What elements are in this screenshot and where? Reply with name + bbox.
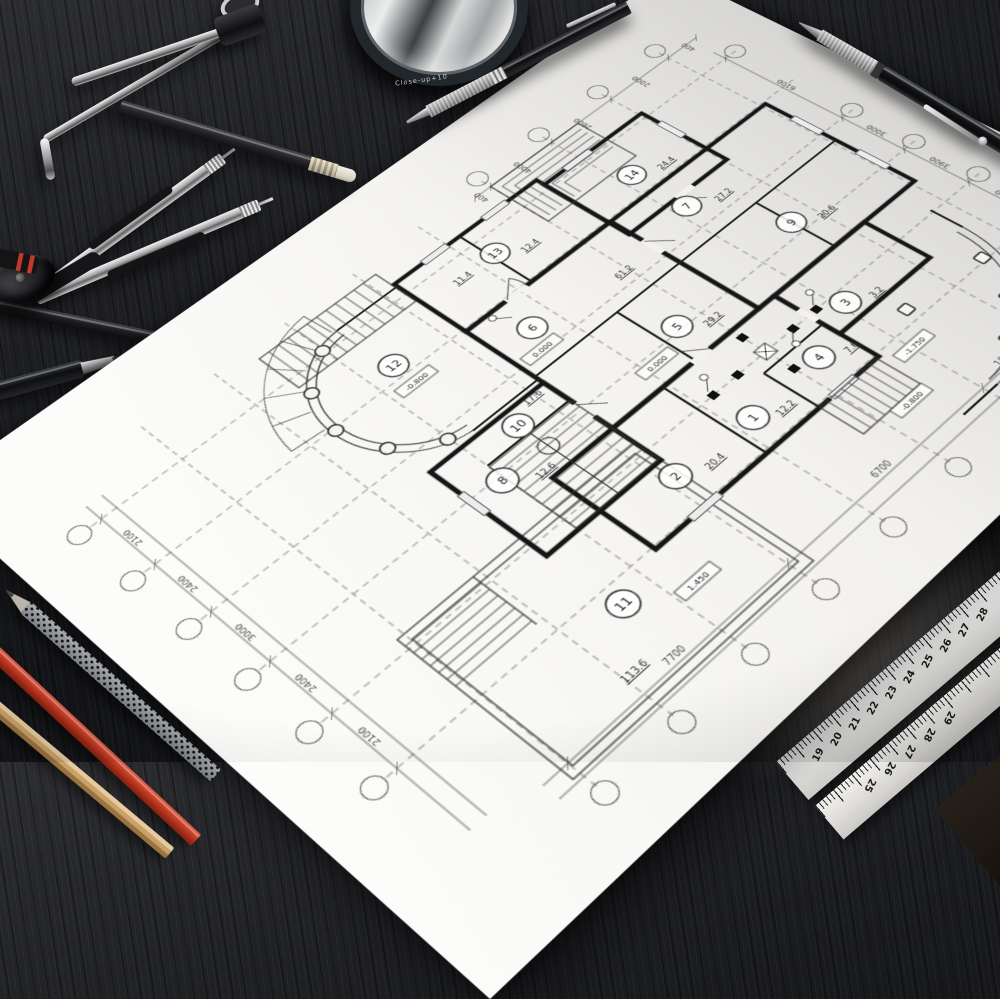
dimension-label: 400: [679, 42, 697, 53]
partition-walls: [314, 66, 1000, 569]
room-area: 61.2: [612, 264, 635, 281]
room-area: 24.4: [655, 155, 677, 170]
lead-pointer-tool: [0, 0, 300, 120]
bay-arc: [206, 311, 477, 510]
room-area: 20.6: [815, 204, 838, 220]
dimension-label: 3000: [233, 621, 259, 643]
room-area: 11.4: [451, 270, 474, 287]
dimension-label: 2400: [175, 573, 200, 594]
room-area: 12.4: [519, 237, 542, 253]
dimension-label: 2600: [572, 117, 595, 131]
loupe-label: Close-up+10: [395, 72, 449, 87]
dimension-label: 1800: [992, 349, 1000, 368]
windows: [277, 63, 1000, 601]
dimension-label: 6700: [869, 459, 895, 480]
room-area: 27.2: [712, 187, 735, 203]
dimension-label: 2400: [293, 671, 320, 694]
room-area: 12.2: [773, 398, 798, 417]
dimension-label: 6100: [775, 78, 798, 91]
room-area: 113.6: [618, 657, 651, 685]
dimension-label: 2100: [121, 528, 145, 548]
dimension-label: 2100: [356, 724, 384, 748]
dimension-label: 2000: [630, 75, 652, 88]
dimension-label: 3000: [865, 123, 889, 137]
dimension-label: 4000: [511, 160, 534, 174]
dimension-label: 3000: [993, 188, 1000, 203]
room-area: 20.4: [702, 451, 728, 471]
